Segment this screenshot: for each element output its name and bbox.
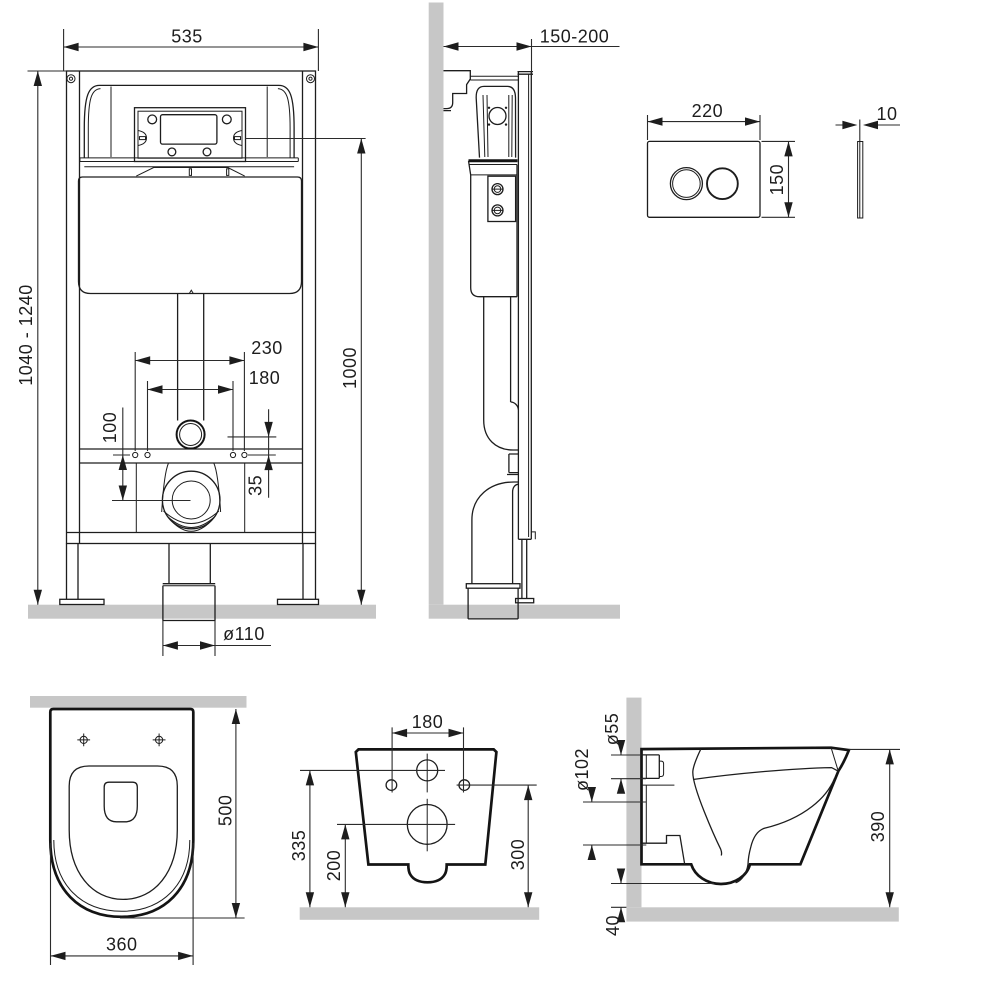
svg-text:360: 360 bbox=[106, 935, 138, 955]
svg-text:200: 200 bbox=[324, 850, 344, 882]
svg-text:535: 535 bbox=[171, 27, 203, 47]
svg-text:220: 220 bbox=[692, 101, 724, 121]
svg-text:ø55: ø55 bbox=[602, 713, 622, 746]
svg-text:ø102: ø102 bbox=[572, 748, 592, 791]
svg-text:335: 335 bbox=[289, 830, 309, 862]
svg-text:ø110: ø110 bbox=[223, 624, 265, 644]
svg-text:230: 230 bbox=[251, 338, 283, 358]
svg-text:180: 180 bbox=[249, 368, 281, 388]
svg-text:40: 40 bbox=[603, 915, 623, 936]
svg-text:100: 100 bbox=[100, 412, 120, 444]
svg-text:390: 390 bbox=[868, 811, 888, 843]
svg-text:35: 35 bbox=[245, 475, 265, 496]
svg-text:1040 - 1240: 1040 - 1240 bbox=[16, 284, 36, 386]
svg-text:1000: 1000 bbox=[340, 347, 360, 389]
svg-text:180: 180 bbox=[412, 712, 444, 732]
svg-text:500: 500 bbox=[215, 795, 235, 827]
svg-text:10: 10 bbox=[876, 104, 897, 124]
svg-text:150: 150 bbox=[767, 164, 787, 196]
svg-text:150-200: 150-200 bbox=[540, 27, 610, 47]
svg-text:300: 300 bbox=[508, 839, 528, 871]
